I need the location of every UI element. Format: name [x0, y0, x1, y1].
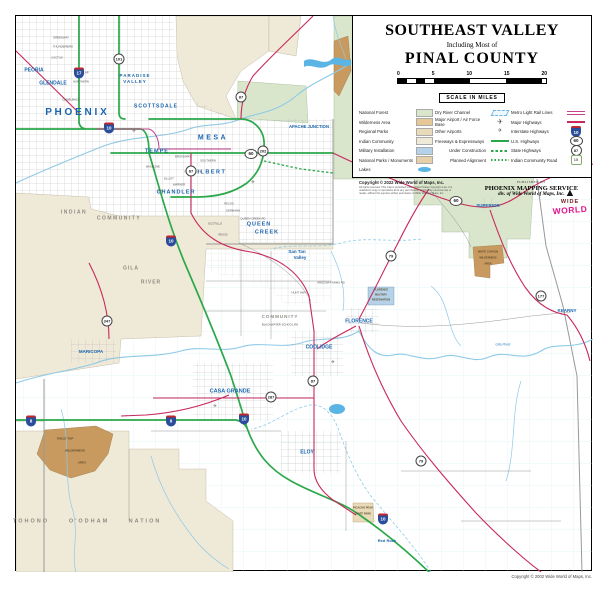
highway-shield: 287 [266, 392, 277, 403]
indian-community-road-shield-icon: 15 [565, 155, 587, 165]
legend-item-label: Indian Community Road [511, 158, 565, 163]
wide-world-logo: ▲ WIDE WORLD [548, 188, 592, 214]
legend-item: Interstate Highways10 [511, 127, 587, 137]
freeway-line-icon [489, 140, 511, 142]
legend-item: Lakes [359, 165, 435, 175]
logo-world-text: WORLD [548, 204, 592, 216]
highway-shield: 177 [536, 291, 547, 302]
dry-river-channel-icon [489, 110, 511, 116]
legend-item-label: Major Airport / Air Force Base [435, 117, 489, 127]
scale-segment [506, 79, 542, 83]
legend-item-label: Dry River Channel [435, 110, 489, 115]
highway-shield: 79 [386, 251, 397, 262]
legend-item: National Parks / Monuments [359, 156, 435, 166]
legend-item: Wilderness Area [359, 118, 435, 128]
scale-segment [398, 79, 407, 83]
scale-segment [425, 79, 434, 83]
legend-item-label: Planned Alignment [435, 158, 489, 163]
title-block: SOUTHEAST VALLEY Including Most of PINAL… [353, 22, 591, 68]
map-title-county: PINAL COUNTY [353, 50, 591, 68]
scale-ticks: 05101520 [397, 71, 547, 78]
legend-column-routes: Dry River ChannelMajor Airport / Air For… [435, 108, 511, 175]
legend-item: Planned Alignment [435, 156, 511, 166]
highway-shield: 87 [236, 92, 247, 103]
map-subtitle: Including Most of [353, 41, 591, 49]
forest-swatch [413, 109, 435, 117]
other-airport-icon: ✈ [489, 129, 511, 135]
legend-item-label: Freeways & Expressways [435, 139, 489, 144]
copyright-block: Copyright © 2022 Wide World of Maps, Inc… [359, 180, 476, 197]
scale-caption-wrap: SCALE IN MILES [397, 86, 547, 104]
map-page: P H O E N I XPEORIAGLENDALEPARADISEVALLE… [0, 0, 600, 600]
legend-item-label: Wilderness Area [359, 120, 413, 125]
legend-item-label: Military Installation [359, 148, 413, 153]
highway-shield: 10 [104, 123, 114, 134]
major-airport-icon: ✈ [489, 119, 511, 126]
copyright-line: Copyright © 2022 Wide World of Maps, Inc… [359, 180, 476, 185]
legend-item-label: Metro Light Rail Lines [511, 110, 565, 115]
highway-shield: 101 [114, 54, 125, 65]
scale-tick: 5 [432, 71, 435, 77]
legend-item: Regional Parks [359, 127, 435, 137]
wilderness-swatch [413, 118, 435, 126]
legend-item-label: National Parks / Monuments [359, 158, 413, 163]
highway-shield: 10 [166, 236, 176, 247]
legend-item: Major Airport / Air Force Base✈ [435, 118, 511, 128]
monuments-swatch [413, 156, 435, 164]
highway-shield: 60 [450, 196, 463, 206]
legend-item-label: Major Highways [511, 120, 565, 125]
highway-shield: 87 [186, 166, 197, 177]
planned-alignment-line-icon [489, 159, 511, 161]
light-rail-line-icon [565, 111, 587, 115]
legend-item: Under Construction [435, 146, 511, 156]
legend-item: Indian Community Road15 [511, 156, 587, 166]
highway-shield: 202 [258, 146, 269, 157]
parks-swatch [413, 128, 435, 136]
major-highway-line-icon [565, 121, 587, 123]
legend-column-areas: National ForestWilderness AreaRegional P… [359, 108, 435, 175]
legend-item: Freeways & Expressways [435, 137, 511, 147]
highway-shield: 8 [26, 416, 36, 427]
highway-shield: 10 [239, 414, 249, 425]
scale-bar-block: 05101520 SCALE IN MILES [397, 71, 547, 104]
legend-item-label: Lakes [359, 167, 413, 172]
scale-tick: 15 [504, 71, 510, 77]
scale-bar [397, 78, 547, 84]
legend-columns: National ForestWilderness AreaRegional P… [359, 108, 587, 175]
legend-item-label: Regional Parks [359, 129, 413, 134]
legend-item: Metro Light Rail Lines [511, 108, 587, 118]
scale-segment [416, 79, 425, 83]
legend-item: Other Airports✈ [435, 127, 511, 137]
legend-item-label: National Forest [359, 110, 413, 115]
legend-column-highways: Metro Light Rail LinesMajor HighwaysInte… [511, 108, 587, 175]
legend-item: National Forest [359, 108, 435, 118]
legend-item-label: U.S. Highways [511, 139, 565, 144]
highway-shield: 8 [166, 416, 176, 427]
legend-item: Military Installation [359, 146, 435, 156]
highway-shield: 17 [74, 68, 84, 79]
legend-panel: SOUTHEAST VALLEY Including Most of PINAL… [352, 15, 592, 178]
legend-item-label: Interstate Highways [511, 129, 565, 134]
highway-shield: 87 [308, 376, 319, 387]
legend-item-label: Indian Community [359, 139, 413, 144]
fine-print-line: resale, without the express written perm… [359, 192, 476, 195]
map-title: SOUTHEAST VALLEY [353, 22, 591, 40]
highway-shield: 347 [102, 316, 113, 327]
legend-item-label: Under Construction [435, 148, 489, 153]
scale-tick: 0 [397, 71, 400, 77]
scale-segment [407, 79, 416, 83]
highway-shield: 79 [416, 456, 427, 467]
scale-tick: 10 [466, 71, 472, 77]
highway-shield: 60 [245, 149, 258, 159]
legend-item: Dry River Channel [435, 108, 511, 118]
highway-shield: 10 [378, 514, 388, 525]
bottom-copyright: Copyright © 2002 Wide World of Maps, Inc… [511, 574, 592, 579]
legend-item: Indian Community [359, 137, 435, 147]
legend-item-label: State Highways [511, 148, 565, 153]
published-by-label: PUBLISHED BY [476, 180, 587, 184]
legend-item: State Highways87 [511, 146, 587, 156]
copyright-fine-print: All rights reserved. This map is protect… [359, 186, 476, 196]
scale-segment [434, 79, 470, 83]
legend-item-label: Other Airports [435, 129, 489, 134]
indian-swatch [413, 137, 435, 145]
scale-tick: 20 [541, 71, 547, 77]
scale-segment [470, 79, 506, 83]
mountain-logo-icon: ▲ [548, 188, 592, 199]
under-construction-line-icon [489, 150, 511, 152]
military-swatch [413, 147, 435, 155]
lake-swatch [413, 167, 435, 172]
scale-caption: SCALE IN MILES [439, 93, 504, 103]
